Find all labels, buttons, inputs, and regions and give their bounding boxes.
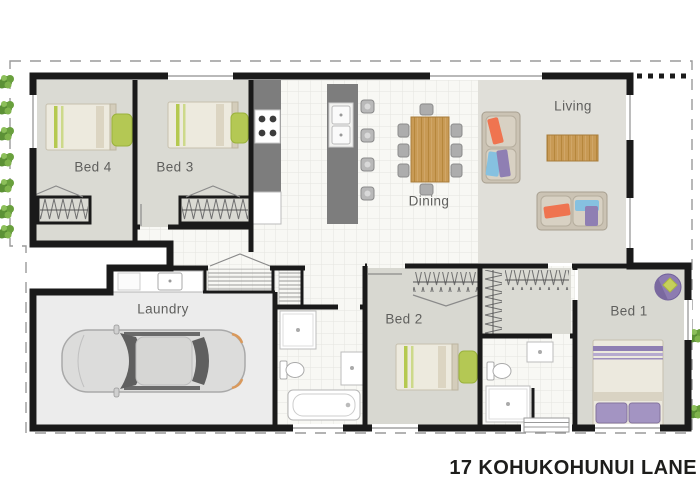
car-top-view (62, 325, 245, 397)
entry-steps (524, 418, 569, 432)
ensuite-sink (527, 342, 553, 362)
floor-plan-drawing (0, 0, 700, 500)
shower-main (280, 311, 316, 349)
ensuite-shower (486, 386, 530, 422)
bed3-bed (168, 102, 248, 148)
ensuite-toilet (487, 362, 511, 380)
room-label-laundry: Laundry (137, 302, 189, 317)
room-label-bed1: Bed 1 (610, 304, 647, 319)
bed1-bed (593, 340, 663, 426)
laundry-bench (112, 271, 203, 292)
sofa-1 (482, 112, 520, 183)
plants-left (0, 75, 14, 239)
bed2-bed (396, 344, 477, 390)
sofa-2 (537, 192, 607, 230)
dining-table (411, 117, 449, 182)
kitchen-counter (253, 80, 281, 224)
island-sink (329, 103, 353, 147)
toilet-main (280, 361, 304, 379)
vanity-main (341, 352, 363, 385)
room-label-living: Living (554, 99, 592, 114)
room-label-bed4: Bed 4 (74, 160, 111, 175)
room-label-bed3: Bed 3 (156, 160, 193, 175)
room-label-bed2: Bed 2 (385, 312, 422, 327)
address-label: 17 KOHUKOHUNUI LANE (449, 457, 697, 480)
round-chair (654, 274, 681, 300)
floor-plan-canvas: Bed 4 Bed 3 Dining Living Laundry Bed 2 … (0, 0, 700, 500)
bathtub (288, 390, 360, 420)
cooktop (255, 110, 280, 143)
coffee-table (547, 135, 598, 161)
room-label-dining: Dining (409, 194, 450, 209)
